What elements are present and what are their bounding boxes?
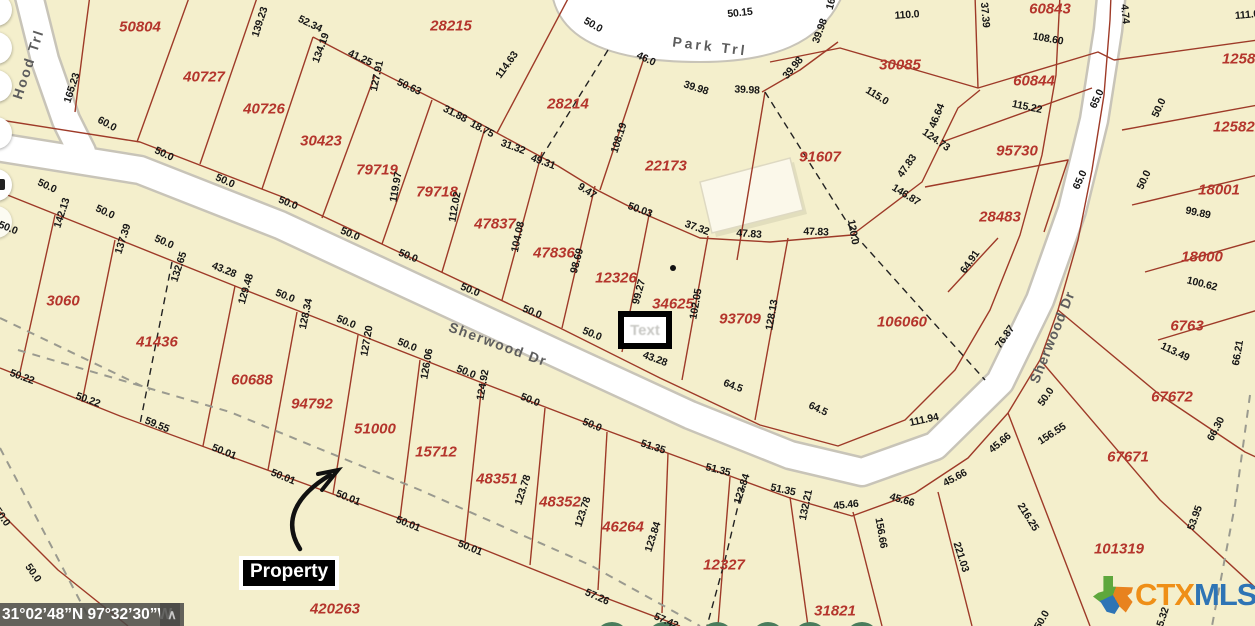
lot-number-12326: 12326 (595, 270, 637, 287)
logo-mls-text: MLS (1194, 577, 1255, 613)
lot-number-18000: 18000 (1181, 249, 1223, 266)
lot-number-30423: 30423 (300, 133, 342, 150)
lot-number-31821: 31821 (814, 603, 856, 620)
lot-number-47837: 47837 (474, 216, 516, 233)
lot-number-125821: 125821 (1222, 51, 1255, 68)
coordinates-expand-button[interactable]: ∧ (160, 603, 184, 626)
lot-number-3060: 3060 (46, 293, 79, 310)
dimension-label: 47.83 (803, 226, 829, 239)
lot-number-30085: 30085 (879, 57, 921, 74)
lot-number-28215: 28215 (430, 18, 472, 35)
plat-map[interactable]: Text Property 31°02’48”N 97°32’30”W ∧ CT… (0, 0, 1255, 626)
dimension-label: 110.0 (894, 8, 919, 22)
lot-number-34625: 34625 (652, 296, 694, 313)
property-annotation-text: Property (250, 561, 328, 582)
lot-number-15712: 15712 (415, 444, 457, 461)
lot-number-60843: 60843 (1029, 1, 1071, 18)
lot-number-51000: 51000 (354, 421, 396, 438)
lot-number-93709: 93709 (719, 311, 761, 328)
lot-number-28483: 28483 (979, 209, 1021, 226)
lot-number-60688: 60688 (231, 372, 273, 389)
dimension-label: 111.0 (1234, 8, 1255, 22)
lot-number-28214: 28214 (547, 96, 589, 113)
dashed-splits (140, 50, 985, 626)
dimension-label: 39.98 (734, 83, 760, 96)
lot-number-41436: 41436 (136, 334, 178, 351)
lot-number-12327: 12327 (703, 557, 745, 574)
survey-dashed-lines (0, 318, 1250, 626)
lot-number-91607: 91607 (799, 149, 841, 166)
chevron-up-icon: ∧ (167, 607, 177, 623)
lot-number-18001: 18001 (1198, 182, 1240, 199)
dimension-label: 47.83 (736, 227, 762, 241)
lot-number-22173: 22173 (645, 158, 687, 175)
lot-number-6763: 6763 (1170, 318, 1203, 335)
lot-number-106060: 106060 (877, 314, 927, 331)
lot-number-60844: 60844 (1013, 73, 1055, 90)
lot-number-125821: 125821 (1213, 119, 1255, 136)
marker-watermark: Text (630, 322, 660, 339)
lot-number-40727: 40727 (183, 69, 225, 86)
dimension-label: 37.39 (978, 2, 992, 28)
lot-number-67672: 67672 (1151, 389, 1193, 406)
lot-number-420263: 420263 (310, 601, 360, 618)
coordinates-text: 31°02’48”N 97°32’30”W (2, 606, 172, 624)
lot-number-47836: 47836 (533, 245, 575, 262)
texas-state-icon (1093, 576, 1133, 614)
lot-number-48352: 48352 (539, 494, 581, 511)
coordinates-readout: 31°02’48”N 97°32’30”W (0, 603, 180, 626)
subject-property-marker[interactable]: Text (618, 311, 672, 349)
lot-number-48351: 48351 (476, 471, 518, 488)
lot-number-50804: 50804 (119, 19, 161, 36)
lot-number-40726: 40726 (243, 101, 285, 118)
lot-number-95730: 95730 (996, 143, 1038, 160)
ctxmls-logo: CTX MLS (1093, 576, 1255, 614)
stop-square-icon (0, 179, 5, 190)
lot-number-101319: 101319 (1094, 541, 1144, 558)
survey-point-dot (670, 265, 676, 271)
lot-number-67671: 67671 (1107, 449, 1149, 466)
lot-number-46264: 46264 (602, 519, 644, 536)
lot-number-94792: 94792 (291, 396, 333, 413)
property-annotation: Property (239, 556, 339, 590)
dimension-label: 4.74 (1118, 4, 1132, 25)
